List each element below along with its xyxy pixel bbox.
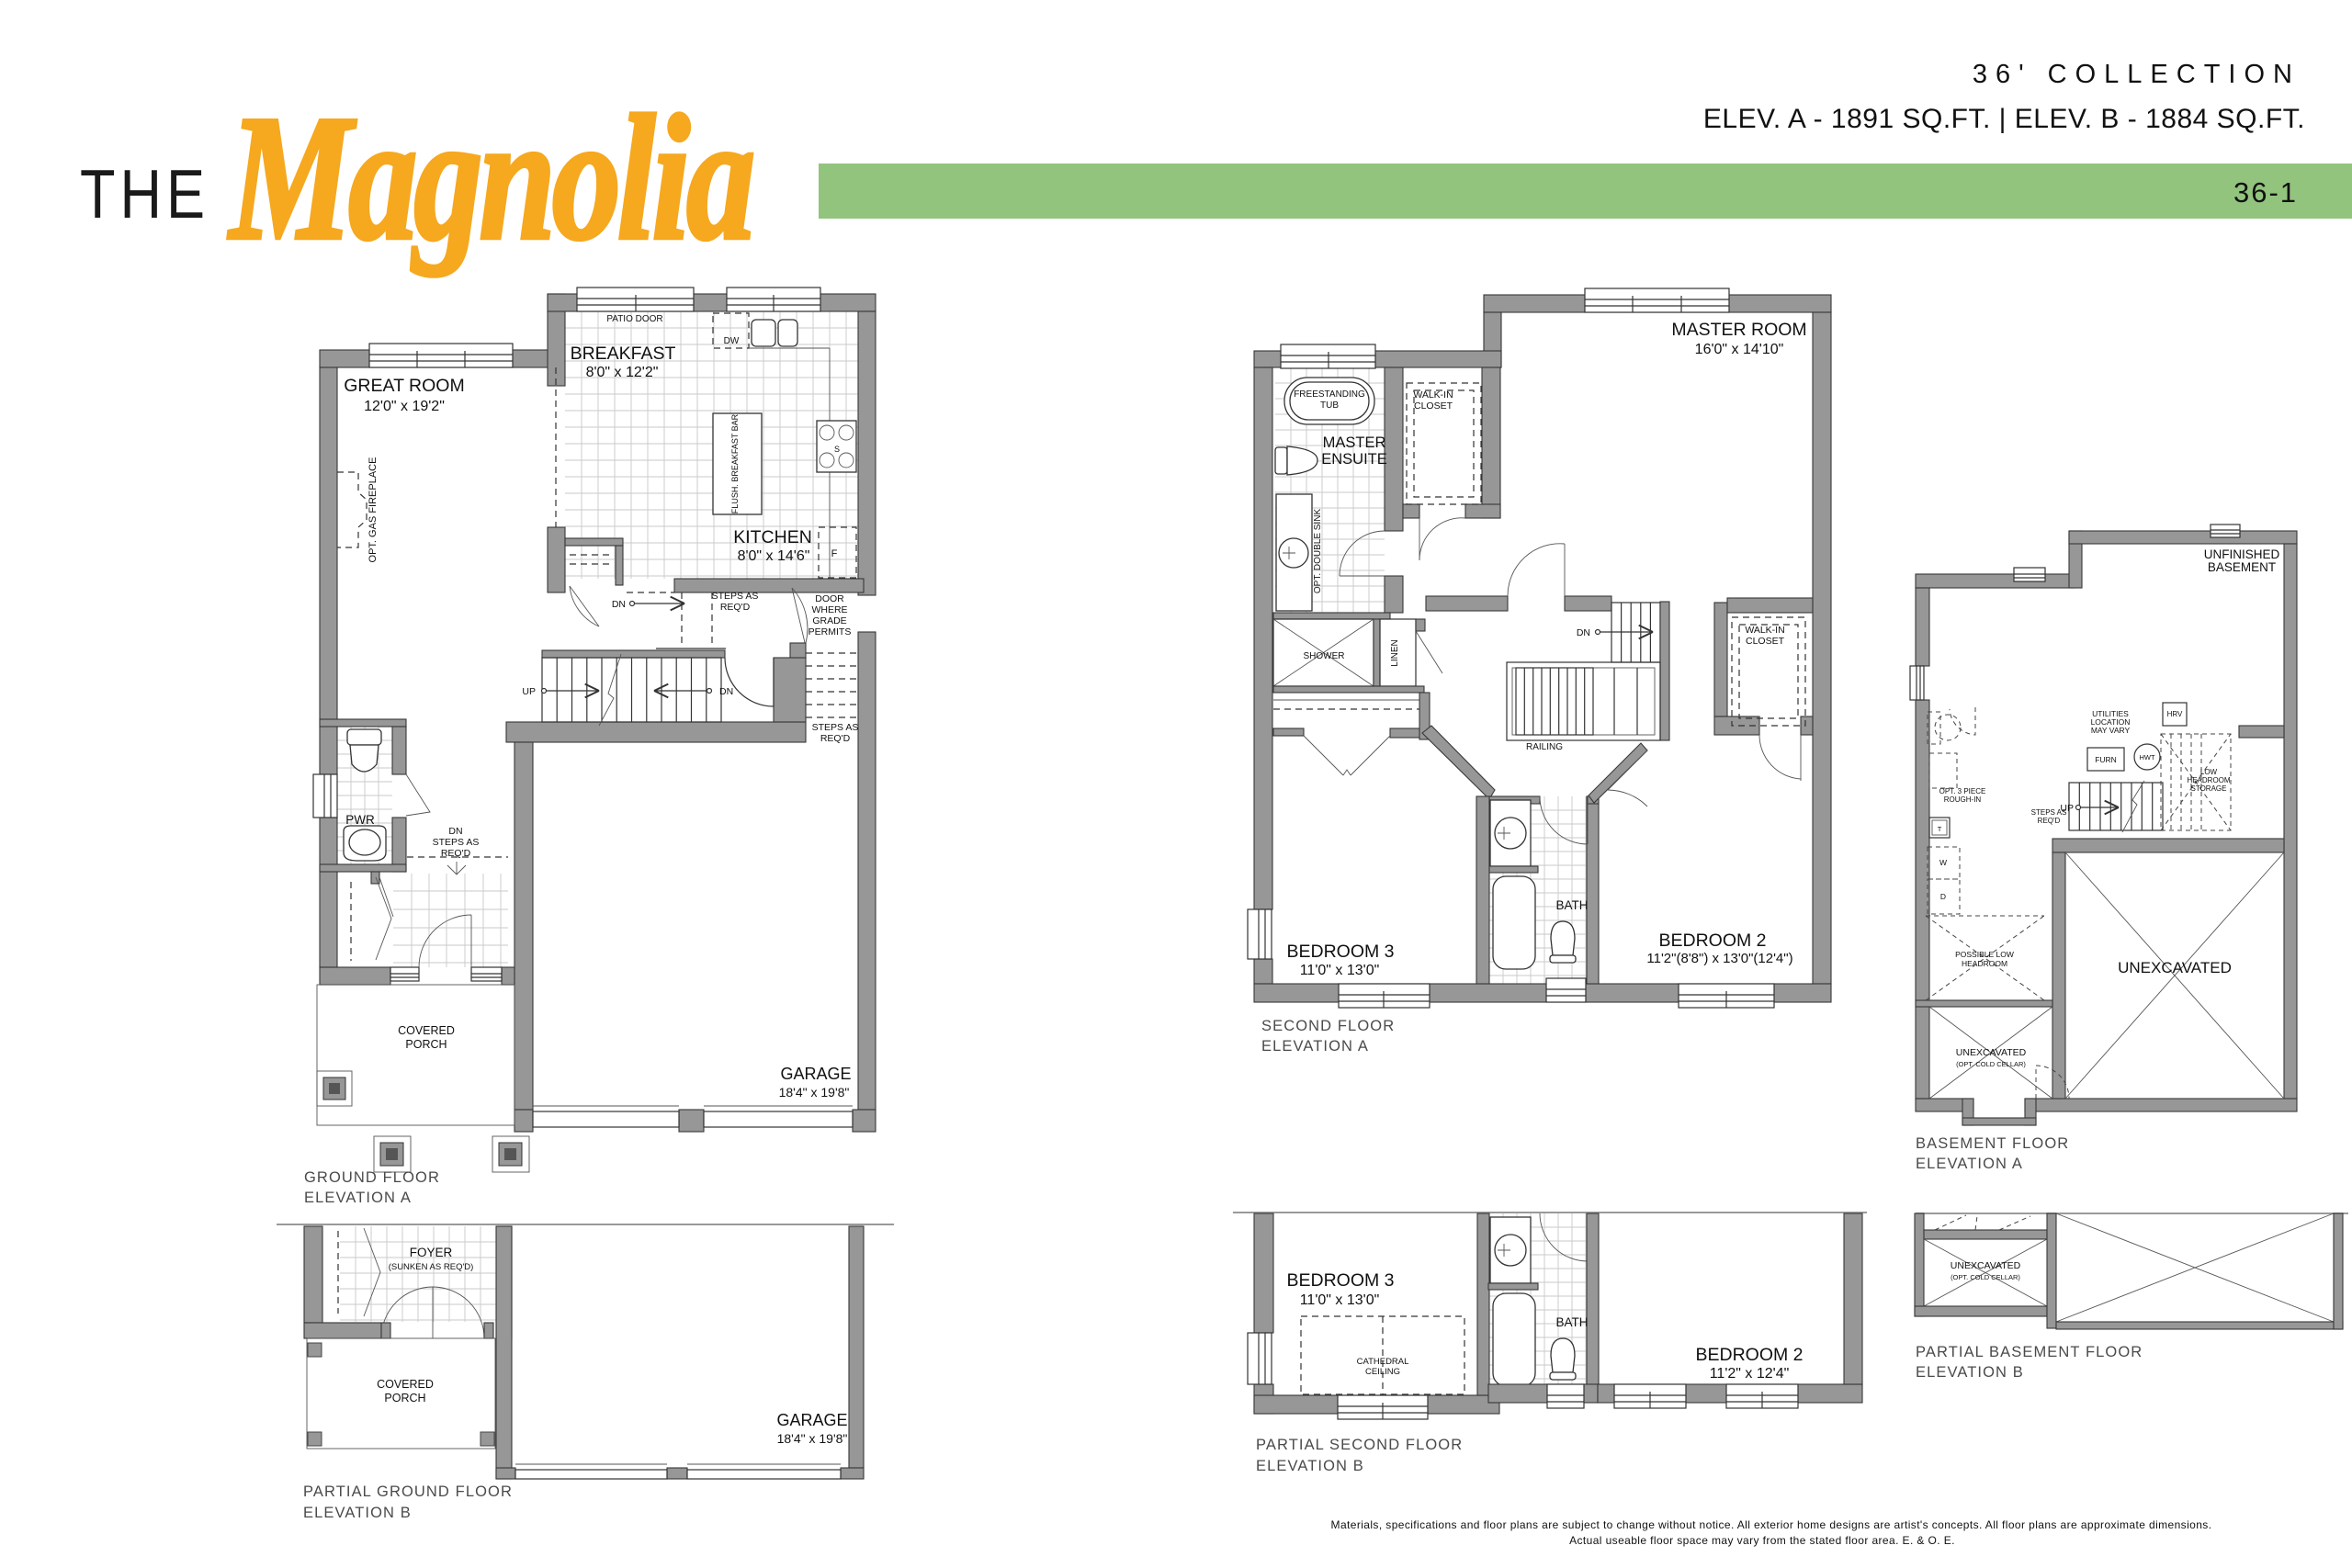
svg-text:POSSIBLE LOW: POSSIBLE LOW — [1955, 950, 2014, 959]
svg-text:HRV: HRV — [2167, 710, 2183, 718]
svg-text:8'0" x 12'2": 8'0" x 12'2" — [586, 365, 659, 380]
svg-text:BATH: BATH — [1555, 898, 1588, 912]
svg-text:DN: DN — [719, 686, 733, 697]
svg-text:RAILING: RAILING — [1526, 742, 1563, 752]
svg-text:F: F — [831, 548, 838, 559]
svg-text:ELEVATION B: ELEVATION B — [303, 1505, 412, 1521]
svg-text:BATH: BATH — [1555, 1315, 1588, 1329]
svg-text:BEDROOM 3: BEDROOM 3 — [1286, 942, 1394, 962]
svg-text:UP: UP — [522, 686, 536, 697]
svg-text:BEDROOM 2: BEDROOM 2 — [1695, 1345, 1803, 1365]
svg-text:HEADROOM: HEADROOM — [1962, 959, 2007, 968]
svg-text:GROUND FLOOR: GROUND FLOOR — [304, 1169, 440, 1186]
svg-text:ELEVATION A: ELEVATION A — [304, 1190, 412, 1206]
svg-text:THE: THE — [80, 155, 209, 232]
svg-text:Magnolia: Magnolia — [227, 78, 752, 276]
svg-text:BASEMENT: BASEMENT — [2208, 560, 2276, 574]
svg-text:STEPS AS: STEPS AS — [812, 722, 859, 733]
svg-text:MASTER ROOM: MASTER ROOM — [1671, 320, 1806, 340]
svg-text:DN: DN — [448, 826, 462, 837]
svg-text:Materials, specifications and: Materials, specifications and floor plan… — [1331, 1518, 2212, 1531]
svg-text:REQ'D: REQ'D — [720, 602, 751, 613]
svg-text:KITCHEN: KITCHEN — [733, 527, 812, 547]
svg-text:FURN: FURN — [2095, 755, 2117, 764]
svg-text:(SUNKEN AS REQ'D): (SUNKEN AS REQ'D) — [389, 1262, 474, 1272]
svg-text:GARAGE: GARAGE — [776, 1411, 847, 1429]
svg-text:ELEVATION B: ELEVATION B — [1256, 1458, 1364, 1474]
svg-text:CATHEDRAL: CATHEDRAL — [1357, 1357, 1409, 1367]
svg-text:GARAGE: GARAGE — [780, 1065, 851, 1083]
svg-text:FOYER: FOYER — [410, 1246, 453, 1259]
svg-text:CLOSET: CLOSET — [1746, 636, 1785, 647]
svg-text:11'2"(8'8") x 13'0"(12'4"): 11'2"(8'8") x 13'0"(12'4") — [1646, 951, 1792, 966]
svg-text:ELEV. A - 1891 SQ.FT. | ELEV: ELEV. A - 1891 SQ.FT. | ELEV. B - 1884 S… — [1703, 104, 2305, 134]
svg-text:18'4" x 19'8": 18'4" x 19'8" — [777, 1431, 848, 1446]
svg-text:GREAT ROOM: GREAT ROOM — [344, 376, 464, 396]
svg-text:PERMITS: PERMITS — [808, 626, 852, 637]
svg-text:GRADE: GRADE — [812, 615, 846, 626]
svg-text:W: W — [1939, 858, 1947, 867]
svg-text:COVERED: COVERED — [398, 1024, 455, 1037]
svg-text:DN: DN — [1577, 627, 1590, 638]
svg-text:CLOSET: CLOSET — [1414, 400, 1453, 412]
svg-text:ROUGH-IN: ROUGH-IN — [1944, 795, 1982, 804]
svg-text:BASEMENT FLOOR: BASEMENT FLOOR — [1916, 1135, 2069, 1152]
svg-text:(OPT. COLD CELLAR): (OPT. COLD CELLAR) — [1951, 1273, 2020, 1281]
svg-text:ELEVATION A: ELEVATION A — [1261, 1038, 1369, 1055]
svg-text:PWR: PWR — [345, 813, 375, 827]
svg-text:36' COLLECTION: 36' COLLECTION — [1973, 60, 2301, 89]
svg-text:OPT. GAS FIREPLACE: OPT. GAS FIREPLACE — [367, 457, 379, 563]
svg-text:DOOR: DOOR — [815, 593, 844, 604]
svg-text:HWT: HWT — [2139, 753, 2154, 761]
svg-text:MAY VARY: MAY VARY — [2091, 726, 2131, 735]
svg-text:FREESTANDING: FREESTANDING — [1294, 389, 1365, 400]
svg-text:STEPS AS: STEPS AS — [2031, 808, 2067, 817]
svg-text:PORCH: PORCH — [405, 1038, 447, 1051]
svg-text:STEPS AS: STEPS AS — [712, 591, 759, 602]
svg-text:CEILING: CEILING — [1365, 1367, 1400, 1377]
svg-text:COVERED: COVERED — [377, 1378, 434, 1391]
svg-text:LINEN: LINEN — [1390, 639, 1400, 666]
svg-text:BEDROOM 2: BEDROOM 2 — [1658, 931, 1766, 951]
svg-text:UNFINISHED: UNFINISHED — [2204, 547, 2280, 561]
svg-text:FLUSH. BREAKFAST BAR: FLUSH. BREAKFAST BAR — [730, 413, 740, 513]
svg-text:T: T — [1938, 825, 1942, 833]
svg-text:18'4" x 19'8": 18'4" x 19'8" — [779, 1085, 850, 1100]
svg-text:TUB: TUB — [1320, 400, 1339, 411]
svg-text:11'0" x 13'0": 11'0" x 13'0" — [1300, 963, 1380, 978]
svg-text:12'0" x 19'2": 12'0" x 19'2" — [364, 399, 445, 414]
svg-text:HEADROOM: HEADROOM — [2187, 776, 2230, 784]
svg-text:8'0" x 14'6": 8'0" x 14'6" — [738, 548, 810, 564]
svg-text:REQ'D: REQ'D — [820, 733, 851, 744]
svg-text:REQ'D: REQ'D — [441, 848, 471, 859]
svg-text:SECOND FLOOR: SECOND FLOOR — [1261, 1018, 1395, 1034]
svg-text:STEPS AS: STEPS AS — [433, 837, 480, 848]
svg-text:STORAGE: STORAGE — [2191, 784, 2227, 793]
svg-text:UNEXCAVATED: UNEXCAVATED — [1951, 1260, 2021, 1271]
svg-text:WHERE: WHERE — [811, 604, 847, 615]
svg-text:LOW: LOW — [2200, 768, 2218, 776]
svg-text:OPT. 3 PIECE: OPT. 3 PIECE — [1939, 787, 1986, 795]
svg-text:Actual useable floor space may: Actual useable floor space may vary from… — [1569, 1534, 1955, 1547]
svg-text:ELEVATION B: ELEVATION B — [1916, 1364, 2024, 1381]
svg-text:36-1: 36-1 — [2233, 176, 2298, 209]
svg-text:PARTIAL GROUND FLOOR: PARTIAL GROUND FLOOR — [303, 1483, 513, 1500]
svg-text:BEDROOM 3: BEDROOM 3 — [1286, 1270, 1394, 1291]
svg-text:ELEVATION A: ELEVATION A — [1916, 1156, 2023, 1172]
svg-text:SHOWER: SHOWER — [1304, 651, 1345, 661]
svg-text:PARTIAL SECOND FLOOR: PARTIAL SECOND FLOOR — [1256, 1437, 1463, 1453]
svg-text:D: D — [1940, 892, 1946, 901]
svg-text:WALK-IN: WALK-IN — [1745, 625, 1784, 636]
svg-text:REQ'D: REQ'D — [2038, 817, 2061, 825]
svg-text:PORCH: PORCH — [384, 1392, 425, 1404]
svg-text:16'0" x 14'10": 16'0" x 14'10" — [1695, 342, 1784, 357]
svg-text:PARTIAL BASEMENT FLOOR: PARTIAL BASEMENT FLOOR — [1916, 1344, 2143, 1360]
svg-text:PATIO DOOR: PATIO DOOR — [606, 314, 662, 324]
svg-text:DN: DN — [612, 599, 626, 610]
svg-text:(OPT. COLD CELLAR): (OPT. COLD CELLAR) — [1956, 1060, 2026, 1068]
svg-text:BREAKFAST: BREAKFAST — [571, 344, 676, 364]
svg-text:ENSUITE: ENSUITE — [1321, 451, 1387, 468]
svg-text:DW: DW — [724, 336, 740, 346]
svg-text:UNEXCAVATED: UNEXCAVATED — [2118, 959, 2232, 976]
svg-text:11'0" x 13'0": 11'0" x 13'0" — [1300, 1292, 1380, 1308]
svg-text:OPT. DOUBLE SINK: OPT. DOUBLE SINK — [1313, 509, 1323, 594]
svg-text:MASTER: MASTER — [1323, 434, 1386, 451]
svg-text:WALK-IN: WALK-IN — [1413, 389, 1453, 400]
svg-text:S: S — [834, 445, 840, 454]
svg-text:UNEXCAVATED: UNEXCAVATED — [1956, 1047, 2027, 1058]
svg-text:11'2" x 12'4": 11'2" x 12'4" — [1710, 1366, 1790, 1382]
